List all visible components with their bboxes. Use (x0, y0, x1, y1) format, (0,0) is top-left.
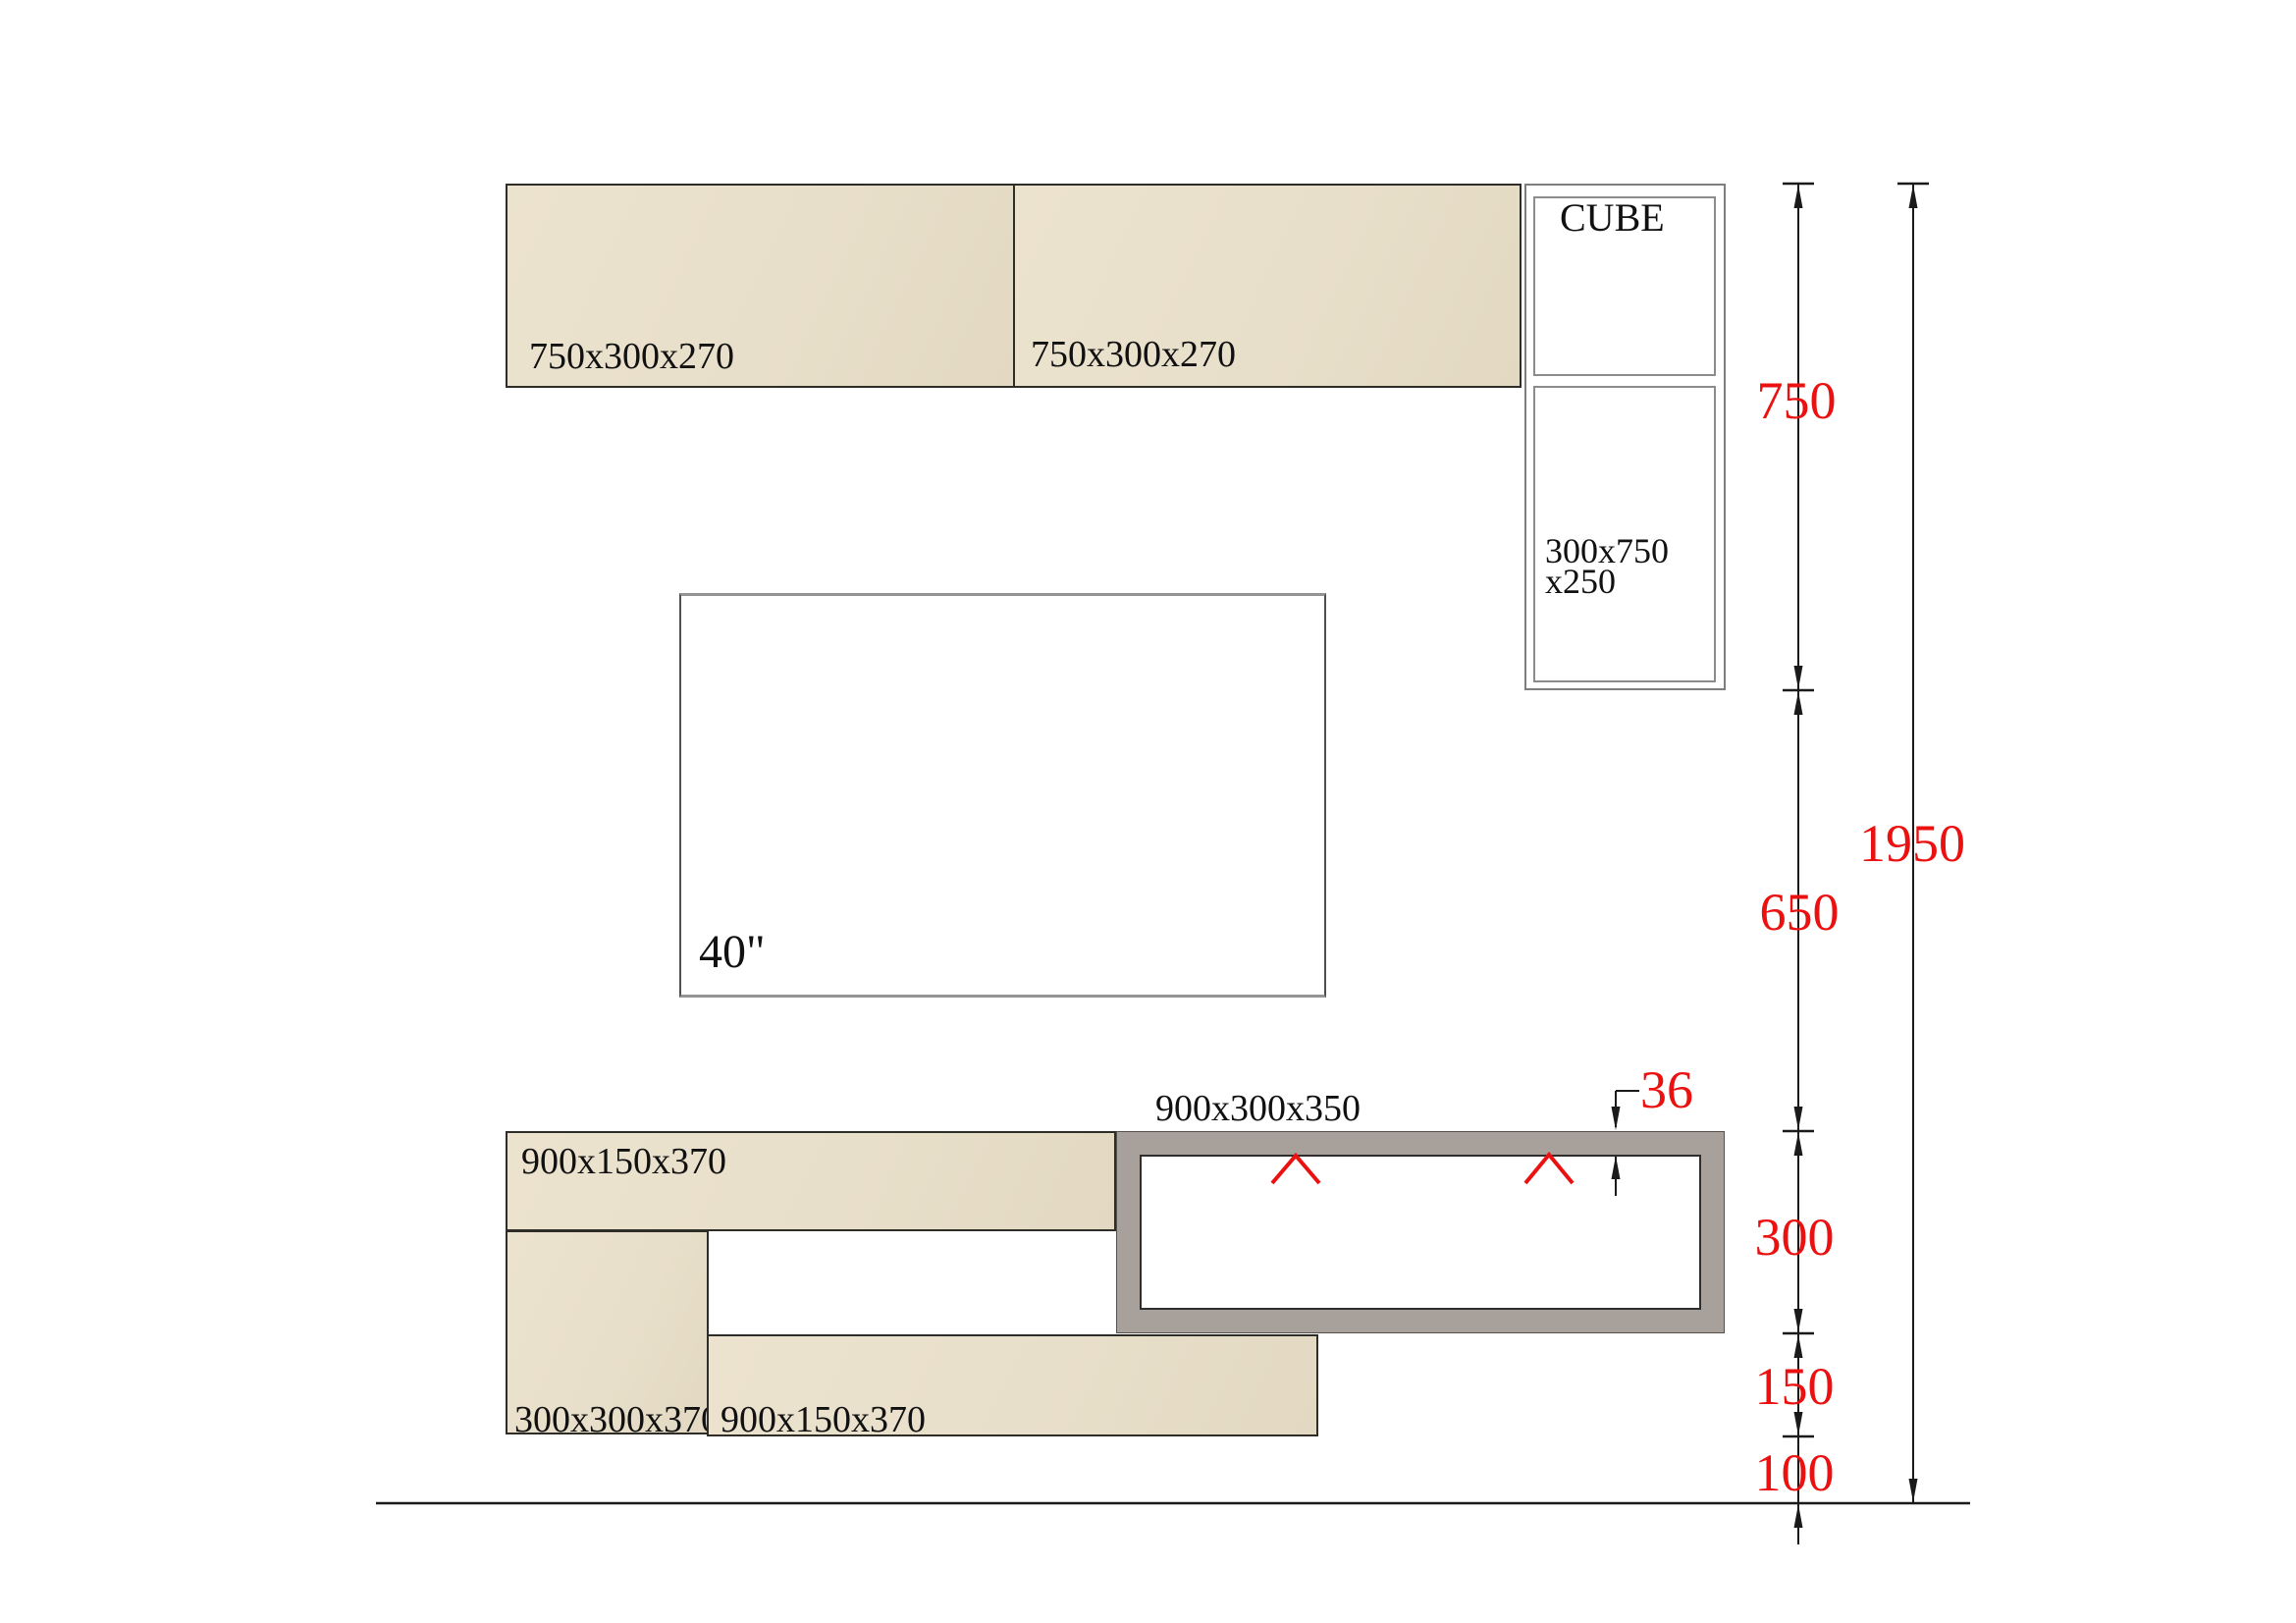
dim-panel-thickness: 36 (1640, 1063, 1693, 1116)
wall-cabinet-left-label: 750x300x270 (529, 338, 734, 375)
elevation-drawing-canvas: 750x300x270 750x300x270 CUBE 300x750 x25… (0, 0, 2296, 1623)
base-left-column-label: 300x300x370 (514, 1401, 720, 1438)
media-box-label: 900x300x350 (1155, 1090, 1361, 1127)
wall-cabinet-right-label: 750x300x270 (1031, 336, 1236, 373)
media-box-opening (1140, 1155, 1701, 1310)
cube-title: CUBE (1560, 198, 1665, 238)
dim-cube-height: 750 (1757, 374, 1837, 427)
base-top-shelf: 900x150x370 (506, 1131, 1116, 1231)
cube-cabinet: CUBE 300x750 x250 (1524, 184, 1726, 690)
tv-size-label: 40" (699, 929, 766, 976)
base-bottom-shelf: 900x150x370 (707, 1334, 1318, 1436)
base-top-shelf-label: 900x150x370 (521, 1143, 726, 1180)
dim-floor-gap: 100 (1755, 1446, 1835, 1499)
base-left-column: 300x300x370 (506, 1230, 709, 1434)
dim-shelf-gap: 150 (1755, 1360, 1835, 1413)
dim-total-height: 1950 (1859, 817, 1965, 870)
media-box (1116, 1131, 1725, 1333)
wall-cabinet-left: 750x300x270 (506, 184, 1015, 388)
dim-middle-gap: 650 (1760, 886, 1840, 939)
cube-size-line2: x250 (1545, 564, 1616, 599)
base-bottom-shelf-label: 900x150x370 (721, 1401, 926, 1438)
dim-media-height: 300 (1755, 1211, 1835, 1264)
tv-screen: 40" (679, 593, 1326, 998)
wall-cabinet-right: 750x300x270 (1013, 184, 1522, 388)
